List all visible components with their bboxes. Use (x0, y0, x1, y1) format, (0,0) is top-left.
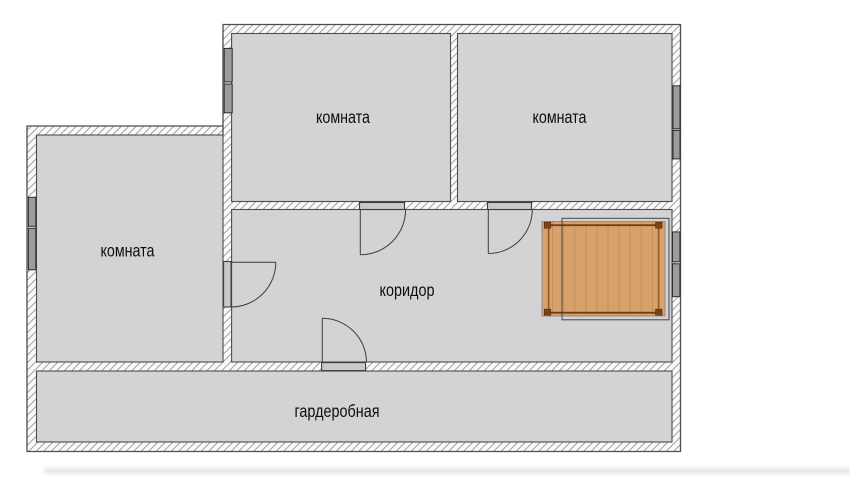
svg-text:комната: комната (316, 107, 370, 127)
svg-text:коридор: коридор (380, 280, 435, 300)
svg-text:гардеробная: гардеробная (295, 401, 380, 421)
svg-text:комната: комната (533, 107, 587, 127)
svg-text:комната: комната (101, 241, 155, 261)
